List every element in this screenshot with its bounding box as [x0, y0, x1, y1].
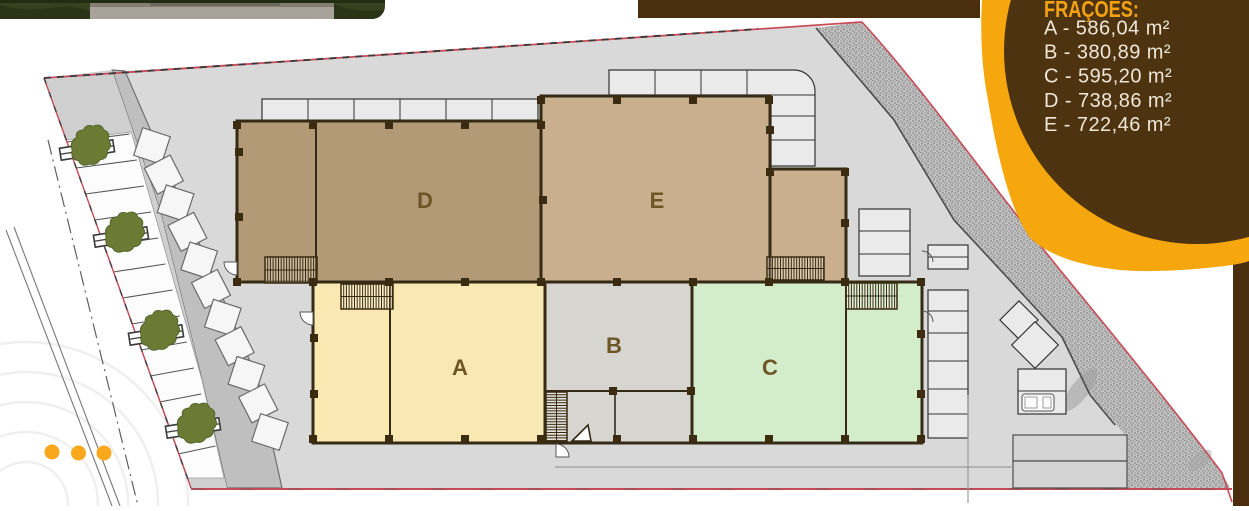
svg-text:A - 586,04 m²: A - 586,04 m² [1044, 18, 1170, 40]
svg-text:B - 380,89 m²: B - 380,89 m² [1044, 42, 1171, 64]
svg-text:E - 722,46 m²: E - 722,46 m² [1044, 114, 1171, 136]
svg-text:E: E [650, 188, 665, 213]
svg-text:B: B [606, 333, 622, 358]
svg-text:A: A [452, 355, 468, 380]
svg-text:D: D [417, 188, 433, 213]
svg-text:D - 738,86 m²: D - 738,86 m² [1044, 90, 1172, 112]
svg-text:C - 595,20 m²: C - 595,20 m² [1044, 66, 1172, 88]
svg-text:C: C [762, 355, 778, 380]
